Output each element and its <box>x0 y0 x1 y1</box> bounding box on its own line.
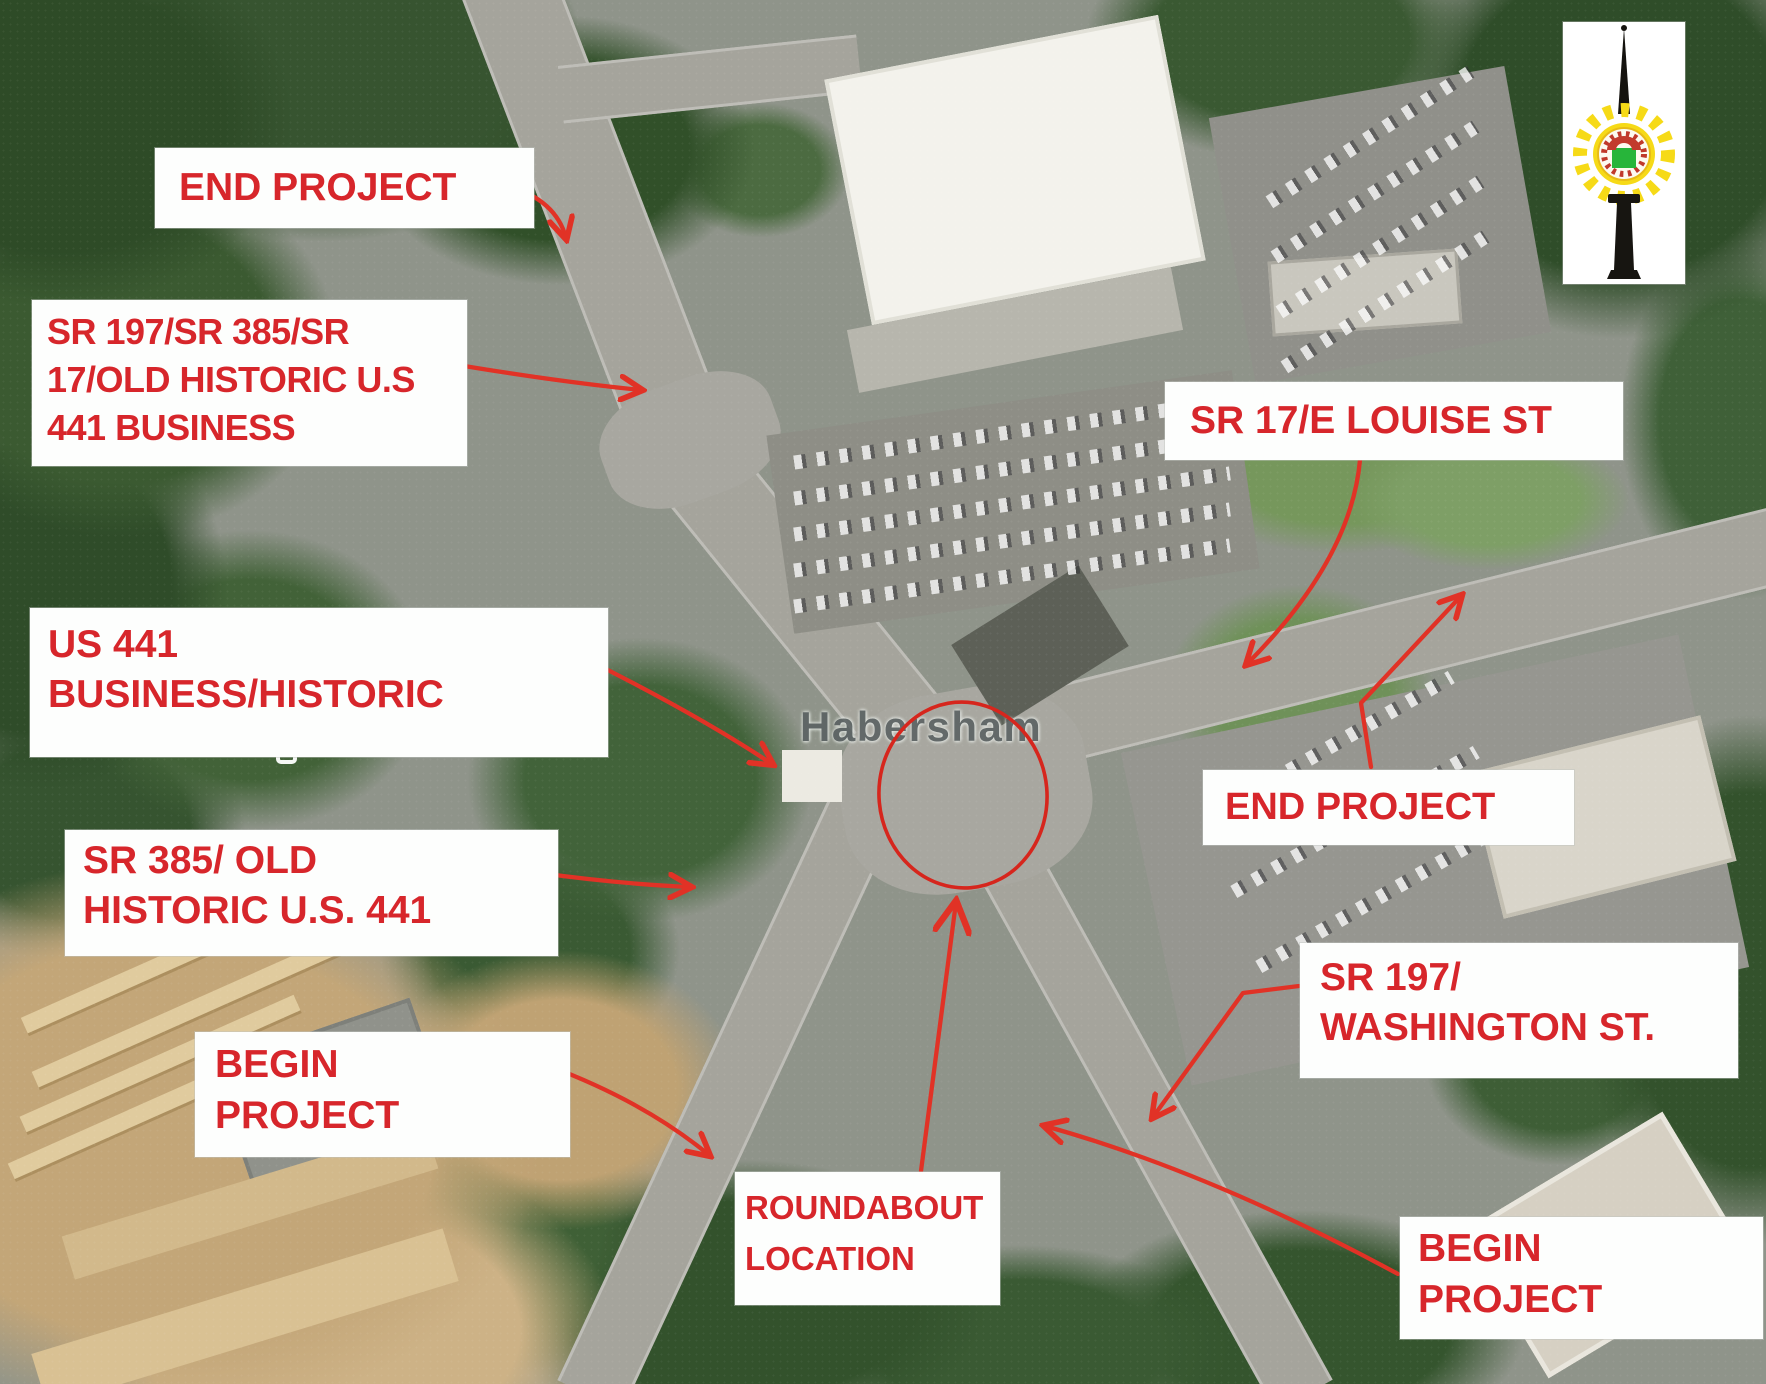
arrow-sr197-washington-st <box>1153 986 1299 1117</box>
arrow-roundabout-location <box>921 902 956 1171</box>
callout-line: SR 17/E LOUISE ST <box>1190 399 1552 443</box>
callout-line: PROJECT <box>1418 1274 1763 1325</box>
arrow-sr197-sr385-sr17 <box>452 364 641 390</box>
callout-line: LOCATION <box>745 1233 1000 1284</box>
arrow-begin-project-southeast <box>1045 1126 1398 1274</box>
arrow-end-project-east <box>1361 596 1461 767</box>
callout-sr197-washington-st: SR 197/ WASHINGTON ST. <box>1300 943 1738 1078</box>
callout-line: BUSINESS/HISTORIC <box>48 670 608 720</box>
arrow-sr385-old-historic <box>540 873 690 887</box>
callout-sr385-old-historic-us441: SR 385/ OLD HISTORIC U.S. 441 <box>65 830 558 956</box>
callout-line: PROJECT <box>215 1090 570 1141</box>
callout-line: SR 197/ <box>1320 953 1738 1003</box>
arrow-begin-project-west <box>549 1066 709 1155</box>
arrow-us441-business-historic <box>588 660 772 764</box>
callout-end-project-east: END PROJECT <box>1203 770 1574 845</box>
callout-begin-project-west: BEGIN PROJECT <box>195 1032 570 1157</box>
callout-line: 441 BUSINESS <box>47 404 467 452</box>
city-seal-monument-logo <box>1563 22 1685 284</box>
callout-line: SR 385/ OLD <box>83 836 558 886</box>
arrow-sr17-e-louise-st <box>1247 460 1360 664</box>
callout-roundabout-location: ROUNDABOUT LOCATION <box>735 1172 1000 1305</box>
callout-line: US 441 <box>48 620 608 670</box>
callout-line: END PROJECT <box>179 166 456 210</box>
callout-line: BEGIN <box>1418 1223 1763 1274</box>
callout-line: 17/OLD HISTORIC U.S <box>47 356 467 404</box>
callout-line: BEGIN <box>215 1039 570 1090</box>
callout-line: END PROJECT <box>1225 786 1495 829</box>
callout-line: SR 197/SR 385/SR <box>47 308 467 356</box>
callout-line: ROUNDABOUT <box>745 1182 1000 1233</box>
roundabout-circle <box>871 695 1055 895</box>
callout-sr197-sr385-sr17-old-historic-us441-business: SR 197/SR 385/SR 17/OLD HISTORIC U.S 441… <box>32 300 467 466</box>
callout-line: WASHINGTON ST. <box>1320 1003 1738 1053</box>
callout-sr17-e-louise-st: SR 17/E LOUISE ST <box>1165 382 1623 460</box>
callout-begin-project-southeast: BEGIN PROJECT <box>1400 1217 1763 1339</box>
callout-us441-business-historic: US 441 BUSINESS/HISTORIC <box>30 608 608 757</box>
satellite-project-map: Habersham END PROJECT <box>0 0 1766 1384</box>
callout-end-project-northwest: END PROJECT <box>155 148 534 228</box>
monument-seal-icon <box>1563 22 1685 284</box>
callout-line: HISTORIC U.S. 441 <box>83 886 558 936</box>
